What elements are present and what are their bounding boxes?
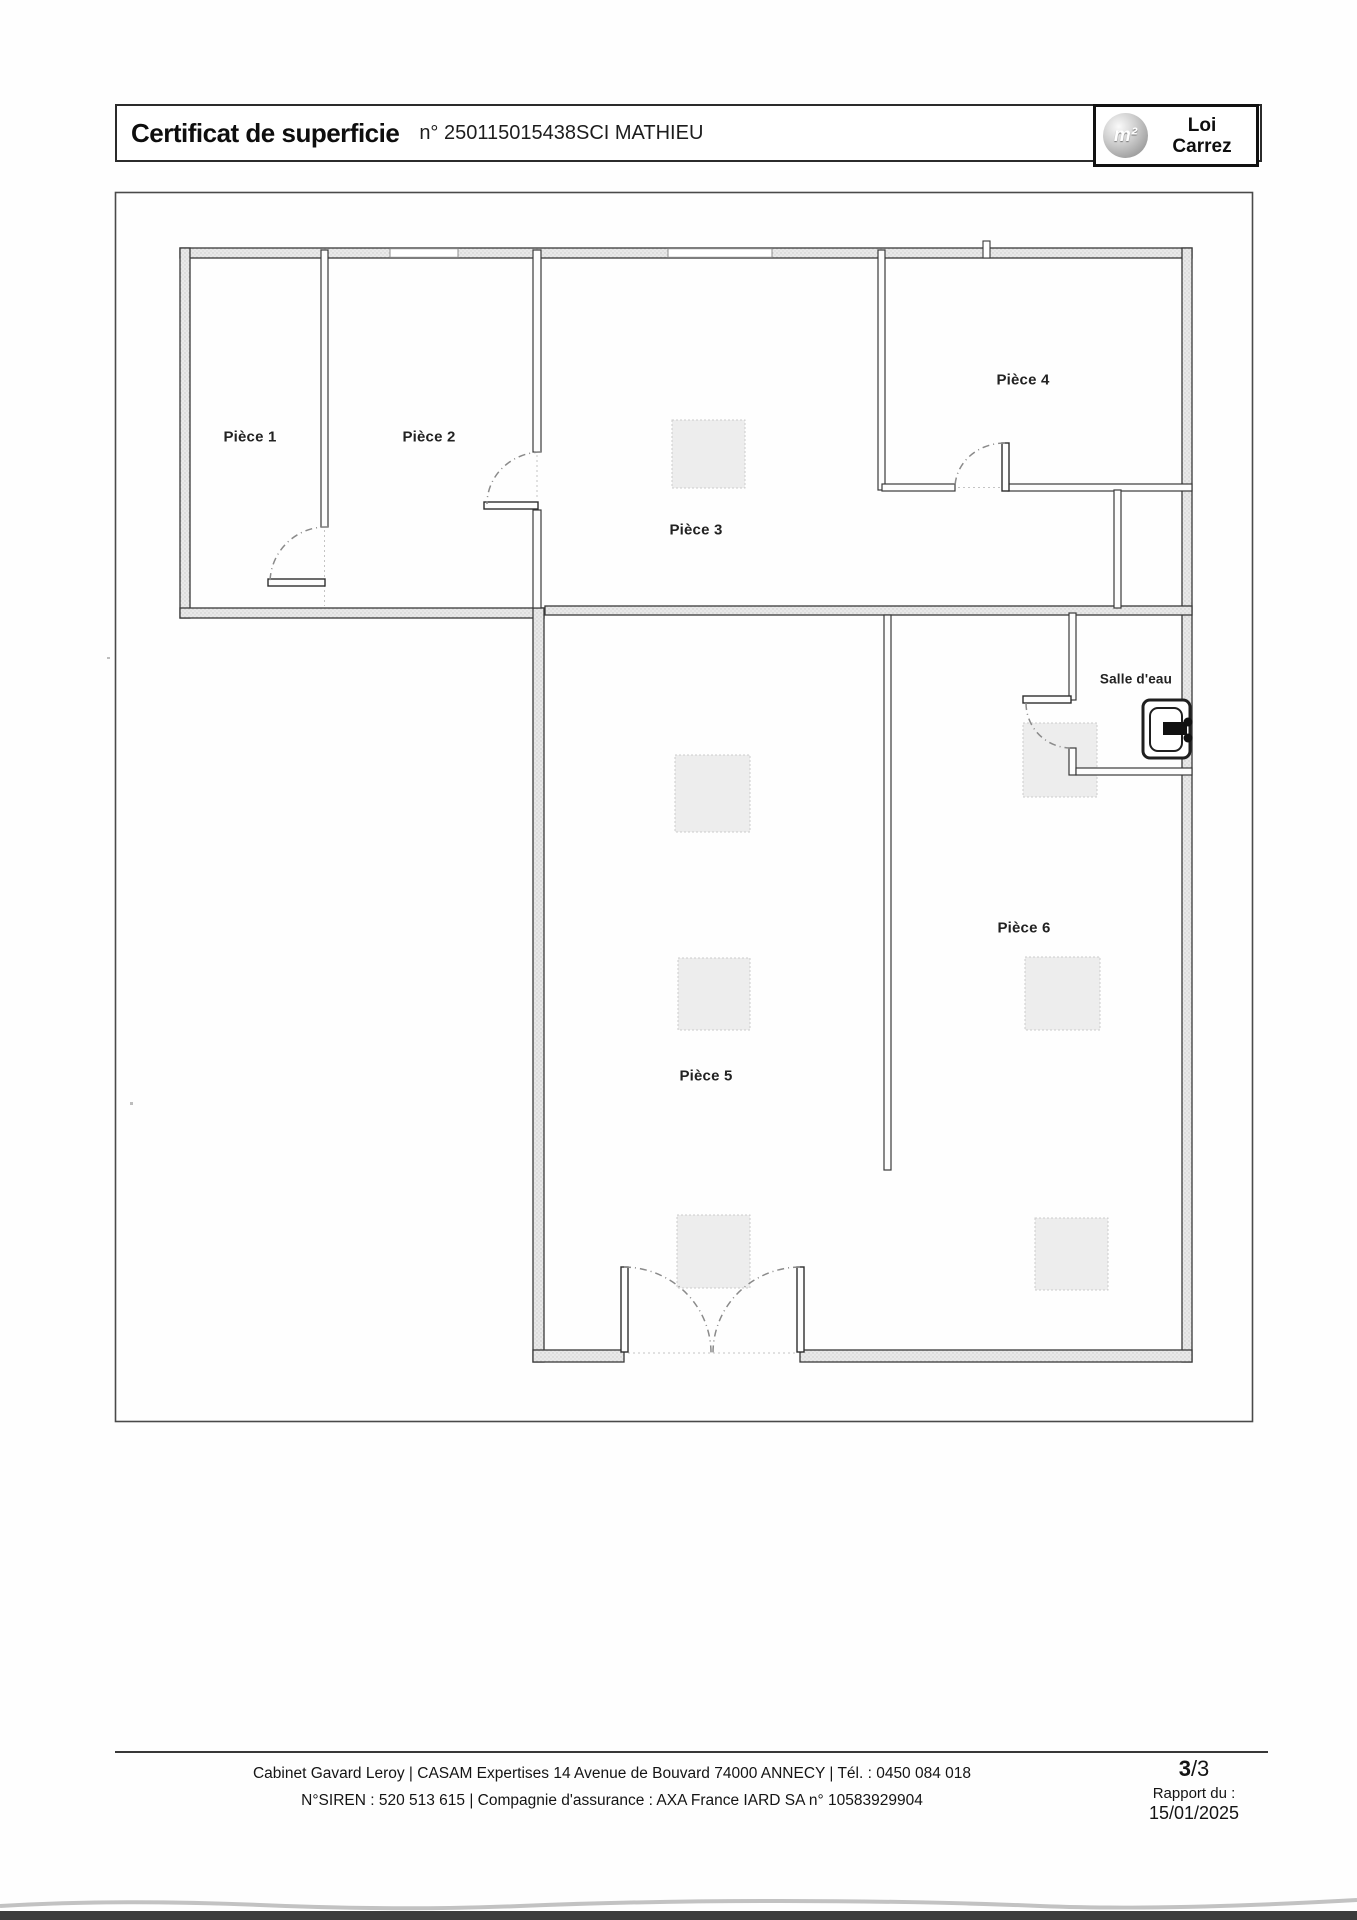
floor-plan [0, 0, 1357, 1920]
footer-divider [115, 1751, 1268, 1753]
document-page: Certificat de superficie n° 250115015438… [0, 0, 1357, 1920]
interior-walls [321, 250, 1192, 1170]
report-date-label: Rapport du : [1138, 1785, 1250, 1802]
room-label-piece-5: Pièce 5 [679, 1068, 732, 1085]
door-leaves [268, 443, 1071, 1352]
footer-line-2: N°SIREN : 520 513 615 | Compagnie d'assu… [180, 1787, 1044, 1814]
door-arcs [270, 443, 1070, 1354]
loi-carrez-label: Loi Carrez [1148, 115, 1256, 157]
room-label-piece-2: Pièce 2 [402, 429, 455, 446]
report-date-value: 15/01/2025 [1138, 1803, 1250, 1824]
wall-stub [983, 241, 990, 258]
sink-icon [1143, 700, 1193, 758]
footer-report-block: 3/3 Rapport du : 15/01/2025 [1138, 1756, 1250, 1824]
m2-sphere-icon: m² [1103, 113, 1148, 158]
scan-specks [107, 657, 133, 1105]
room-label-piece-1: Pièce 1 [223, 429, 276, 446]
room-label-salle-deau: Salle d'eau [1100, 672, 1172, 687]
footer-company-info: Cabinet Gavard Leroy | CASAM Expertises … [180, 1760, 1044, 1814]
room-label-piece-4: Pièce 4 [996, 372, 1049, 389]
room-label-piece-6: Pièce 6 [997, 920, 1050, 937]
footer-line-1: Cabinet Gavard Leroy | CASAM Expertises … [180, 1760, 1044, 1787]
loi-carrez-logo: m² Loi Carrez [1093, 104, 1259, 167]
scan-bottom-bar [0, 1900, 1357, 1920]
m2-symbol: m² [1114, 125, 1137, 147]
page-number: 3/3 [1138, 1756, 1250, 1782]
door-threshold-lines [325, 455, 1002, 1353]
room-label-piece-3: Pièce 3 [669, 522, 722, 539]
